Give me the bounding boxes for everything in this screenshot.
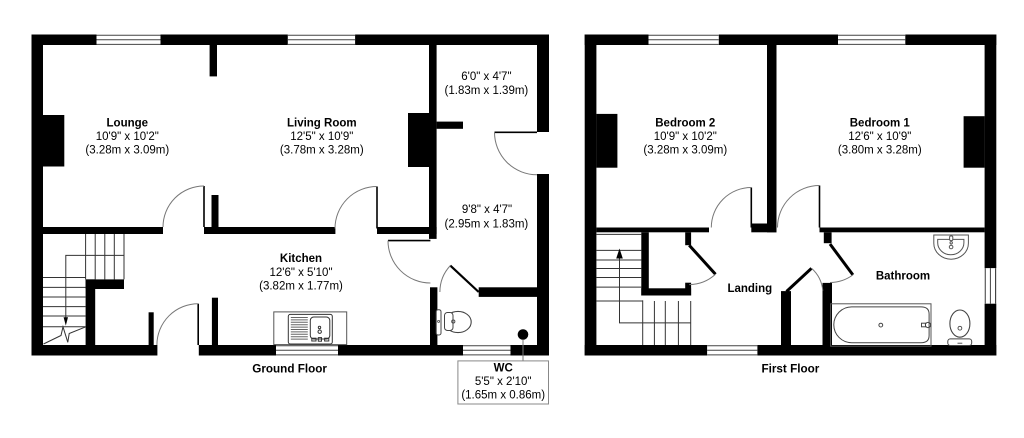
svg-text:First Floor: First Floor <box>762 362 820 375</box>
svg-text:12'5" x 10'9": 12'5" x 10'9" <box>290 131 353 143</box>
svg-text:(1.65m x 0.86m): (1.65m x 0.86m) <box>461 390 545 402</box>
svg-text:10'9" x 10'2": 10'9" x 10'2" <box>96 131 159 143</box>
svg-text:Bedroom 1: Bedroom 1 <box>850 117 911 129</box>
svg-text:6'0" x 4'7": 6'0" x 4'7" <box>461 71 511 83</box>
svg-text:(2.95m x 1.83m): (2.95m x 1.83m) <box>445 218 529 230</box>
svg-text:12'6" x 10'9": 12'6" x 10'9" <box>848 131 911 143</box>
svg-text:(3.82m x 1.77m): (3.82m x 1.77m) <box>259 280 343 292</box>
svg-text:10'9" x 10'2": 10'9" x 10'2" <box>654 131 717 143</box>
svg-text:Lounge: Lounge <box>107 117 149 129</box>
svg-text:9'8" x 4'7": 9'8" x 4'7" <box>462 204 512 216</box>
svg-text:Bathroom: Bathroom <box>876 271 930 283</box>
svg-text:Kitchen: Kitchen <box>280 253 322 265</box>
svg-text:5'5" x 2'10": 5'5" x 2'10" <box>475 376 532 388</box>
svg-text:Landing: Landing <box>727 283 772 295</box>
svg-text:(1.83m x 1.39m): (1.83m x 1.39m) <box>445 85 529 97</box>
svg-text:(3.28m x 3.09m): (3.28m x 3.09m) <box>85 145 169 157</box>
svg-text:Living Room: Living Room <box>287 117 357 129</box>
svg-text:Bedroom 2: Bedroom 2 <box>655 117 715 129</box>
svg-text:(3.80m x 3.28m): (3.80m x 3.28m) <box>838 145 922 157</box>
svg-text:WC: WC <box>494 363 513 375</box>
svg-text:12'6" x 5'10": 12'6" x 5'10" <box>269 267 332 279</box>
svg-text:(3.78m x 3.28m): (3.78m x 3.28m) <box>280 145 364 157</box>
svg-text:Ground Floor: Ground Floor <box>252 363 327 376</box>
svg-text:(3.28m x 3.09m): (3.28m x 3.09m) <box>643 145 727 157</box>
